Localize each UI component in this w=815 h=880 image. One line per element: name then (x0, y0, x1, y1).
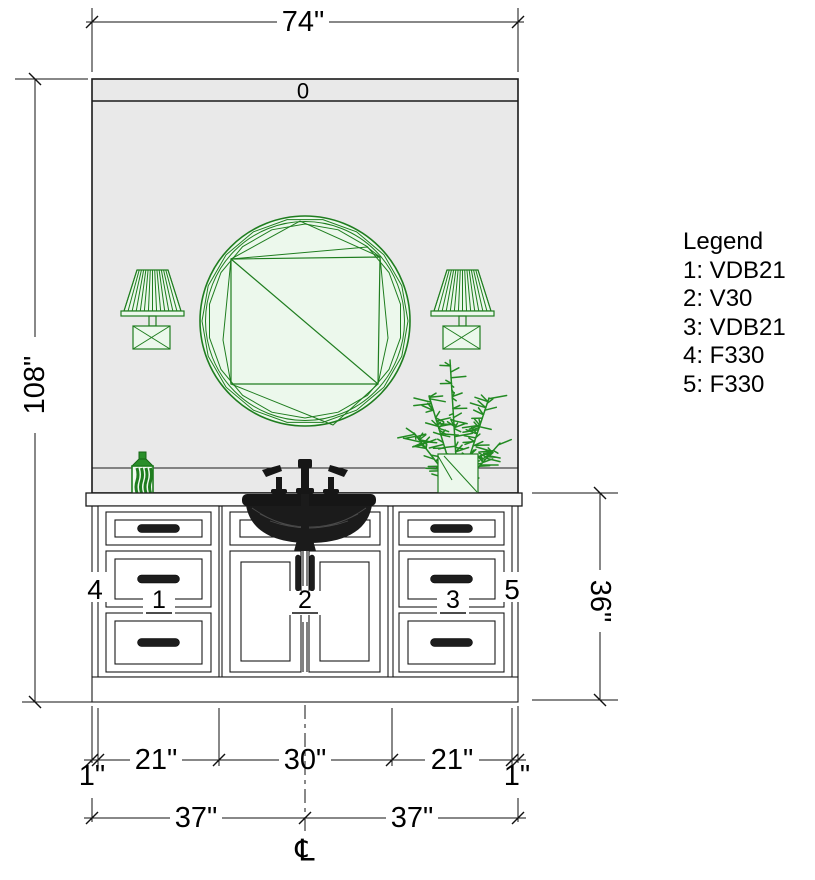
dim-half-right: 37" (391, 802, 434, 834)
label-right-filler: 5 (504, 574, 520, 605)
dim-cab-right: 21" (431, 744, 474, 776)
faucet-spout (298, 459, 312, 468)
dim-filler-right: 1" (504, 760, 530, 792)
dim-ceiling-height: 108" (19, 356, 51, 415)
label-left-filler: 4 (87, 574, 103, 605)
dim-half-left: 37" (175, 802, 218, 834)
dim-cab-center: 30" (284, 744, 327, 776)
dim-overall-width: 74" (282, 6, 325, 38)
dim-cab-left: 21" (135, 744, 178, 776)
mirror (200, 216, 410, 426)
label-left-drawer-bank: 1 (152, 586, 166, 614)
toe-kick (92, 677, 518, 702)
legend-title: Legend (683, 228, 786, 257)
label-center-doors: 2 (298, 586, 312, 614)
dim-filler-left: 1" (79, 760, 105, 792)
legend-item: 3: VDB21 (683, 314, 786, 343)
label-right-drawer-bank: 3 (446, 586, 460, 614)
centerline-symbol: ℄ (294, 834, 314, 869)
dim-vanity-height: 36" (584, 580, 616, 623)
wall-zero-label: 0 (297, 79, 309, 104)
vanity-elevation-drawing: 0 (0, 0, 815, 880)
legend: Legend 1: VDB21 2: V30 3: VDB21 4: F330 … (683, 228, 786, 400)
legend-item: 2: V30 (683, 285, 786, 314)
legend-item: 1: VDB21 (683, 257, 786, 286)
legend-item: 5: F330 (683, 371, 786, 400)
legend-item: 4: F330 (683, 342, 786, 371)
